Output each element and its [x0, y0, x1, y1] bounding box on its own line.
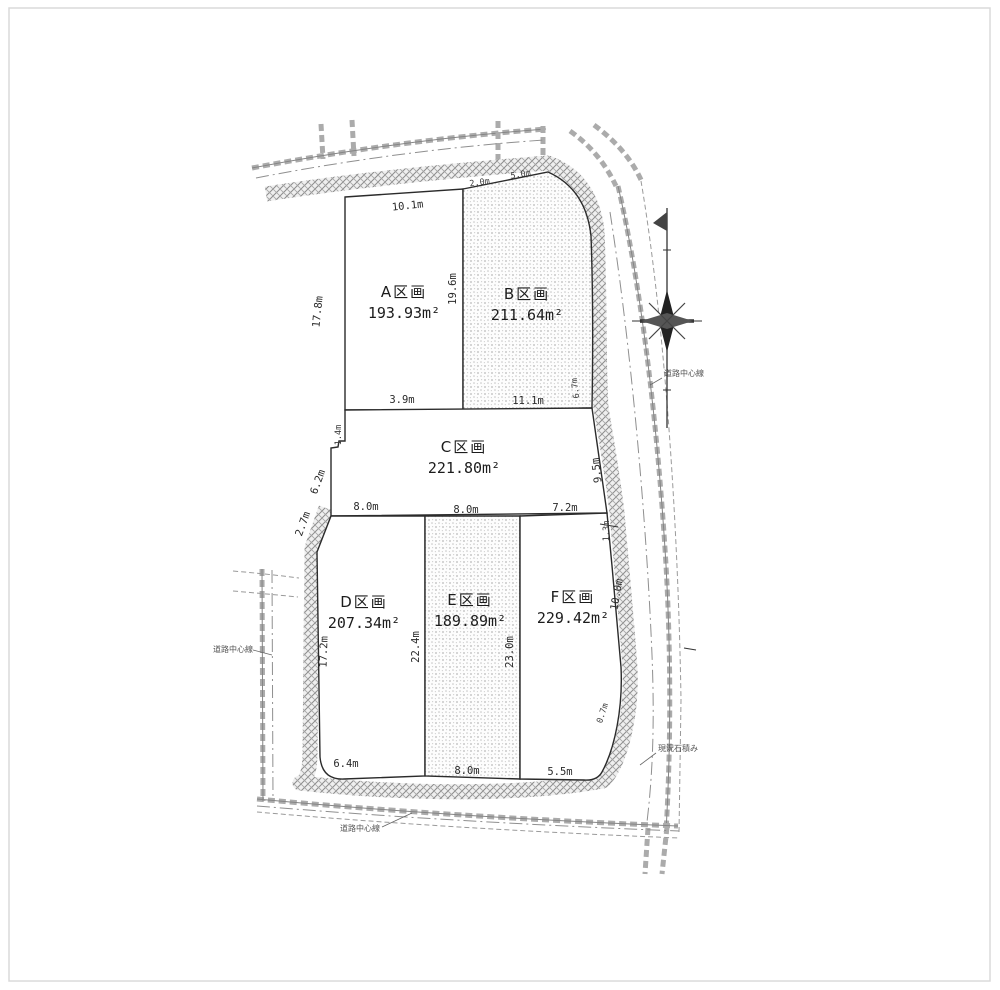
dim-c-bottom-center: 8.0m [453, 504, 478, 516]
dim-d-bottom: 6.4m [333, 758, 358, 770]
plot-c-label: C区画 [441, 438, 487, 456]
dim-a-bottom: 3.9m [389, 394, 414, 406]
plot-b-label: B区画 [504, 285, 550, 303]
plot-f-shape [520, 513, 621, 780]
plot-a-area: 193.93m² [368, 304, 440, 322]
dim-c-bottom-left: 8.0m [353, 501, 378, 513]
dim-ef-divider: 23.0m [504, 636, 516, 668]
dim-c-left-jog: 1.4m [334, 425, 344, 445]
plot-c-area: 221.80m² [428, 459, 500, 477]
dim-c-bottom-right: 7.2m [552, 502, 577, 514]
plot-e-label: E区画 [447, 591, 492, 609]
anno-bottom-road: 道路中心線 [340, 823, 380, 833]
dim-ab-divider: 19.6m [447, 273, 459, 305]
dim-de-divider: 22.4m [410, 631, 422, 663]
plot-f-area: 229.42m² [537, 609, 609, 627]
dim-d-left: 17.2m [317, 636, 330, 668]
dim-e-bottom: 8.0m [454, 765, 479, 777]
dim-f-bottom: 5.5m [547, 766, 572, 778]
anno-left-road: 道路中心線 [213, 644, 253, 654]
plot-b-area: 211.64m² [491, 306, 563, 324]
dim-a-left: 17.8m [310, 295, 325, 328]
plot-a-label: A区画 [381, 283, 427, 301]
anno-right-road: 道路中心線 [664, 368, 704, 378]
site-plan-drawing: A区画 193.93m² B区画 211.64m² C区画 221.80m² D… [0, 0, 1000, 990]
dim-f-right-mid: 1.3m [602, 521, 612, 541]
anno-right-wall: 現況石積み [658, 743, 698, 753]
plot-f-label: F区画 [551, 588, 596, 606]
site-plan-page: A区画 193.93m² B区画 211.64m² C区画 221.80m² D… [0, 0, 1000, 990]
plot-d-area: 207.34m² [328, 614, 400, 632]
dim-b-bottom: 11.1m [512, 395, 544, 407]
plot-e-area: 189.89m² [434, 612, 506, 630]
dim-c-left-upper: 6.2m [308, 468, 328, 496]
plot-d-label: D区画 [340, 593, 388, 611]
plot-d-shape [317, 516, 425, 779]
